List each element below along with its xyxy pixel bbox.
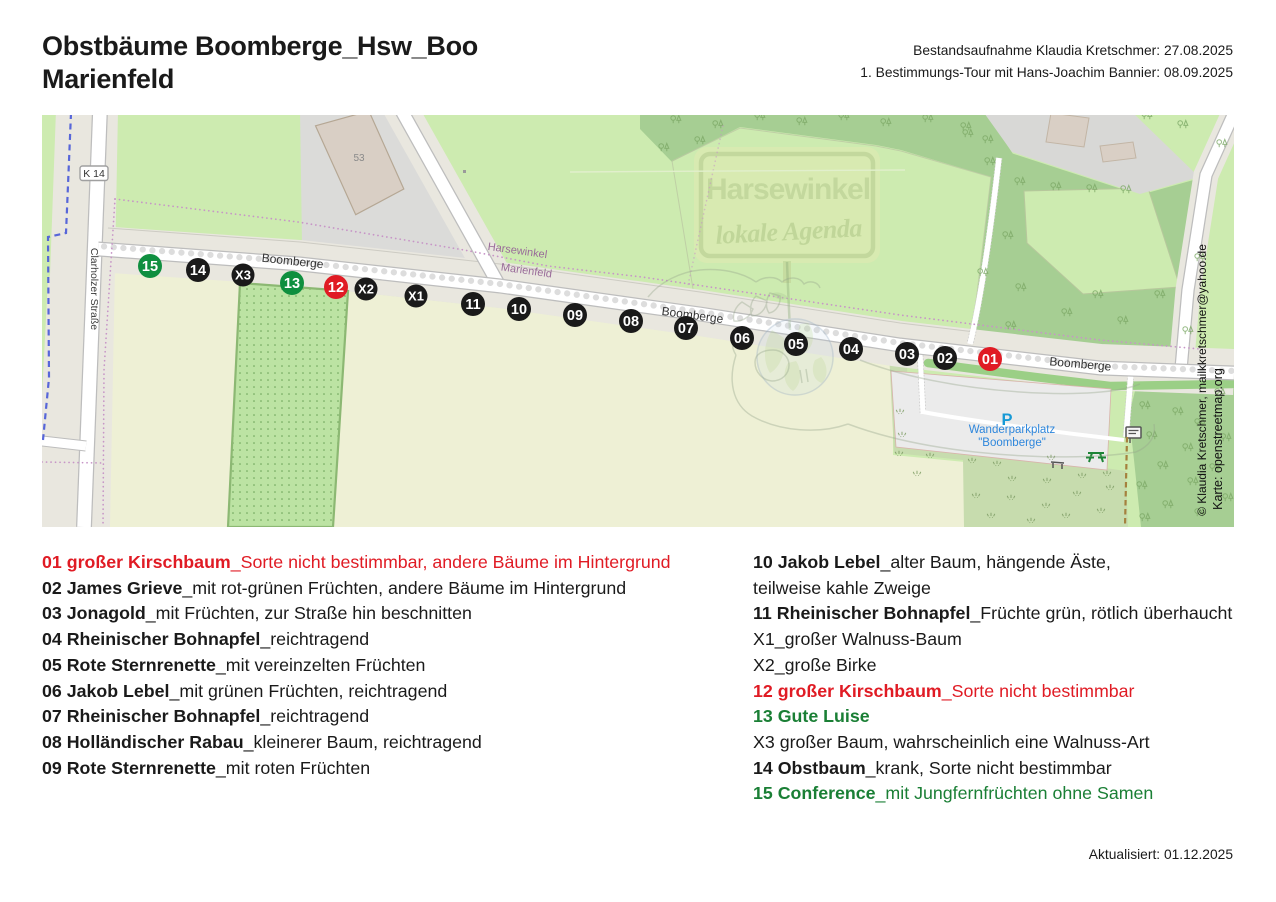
- svg-text:09: 09: [567, 308, 583, 324]
- svg-text:X1: X1: [408, 289, 424, 304]
- svg-text:10: 10: [511, 302, 527, 318]
- svg-text:Clarholzer Straße: Clarholzer Straße: [88, 248, 100, 330]
- svg-text:04: 04: [843, 342, 859, 358]
- svg-text:14: 14: [190, 263, 206, 279]
- svg-text:13: 13: [284, 276, 300, 292]
- svg-text:05: 05: [788, 337, 804, 353]
- svg-text:08: 08: [623, 314, 639, 330]
- svg-text:"Boomberge": "Boomberge": [978, 437, 1046, 449]
- svg-text:Karte: openstreetmap.org: Karte: openstreetmap.org: [1211, 368, 1225, 510]
- svg-text:53: 53: [353, 153, 365, 164]
- svg-text:X3: X3: [235, 268, 251, 283]
- svg-text:11: 11: [465, 297, 480, 313]
- svg-text:02: 02: [937, 351, 953, 367]
- svg-text:15: 15: [142, 259, 158, 275]
- svg-text:06: 06: [734, 331, 750, 347]
- svg-text:01: 01: [982, 352, 998, 368]
- svg-text:Wanderparkplatz: Wanderparkplatz: [969, 424, 1056, 436]
- svg-text:K 14: K 14: [83, 168, 105, 180]
- svg-text:12: 12: [328, 280, 344, 296]
- svg-text:03: 03: [899, 347, 915, 363]
- svg-text:X2: X2: [358, 282, 374, 297]
- svg-text:© Klaudia Kretschmer, mailkkre: © Klaudia Kretschmer, mailkkretschmer@ya…: [1195, 244, 1209, 516]
- svg-text:07: 07: [678, 321, 694, 337]
- svg-text:Harsewinkel: Harsewinkel: [706, 173, 870, 206]
